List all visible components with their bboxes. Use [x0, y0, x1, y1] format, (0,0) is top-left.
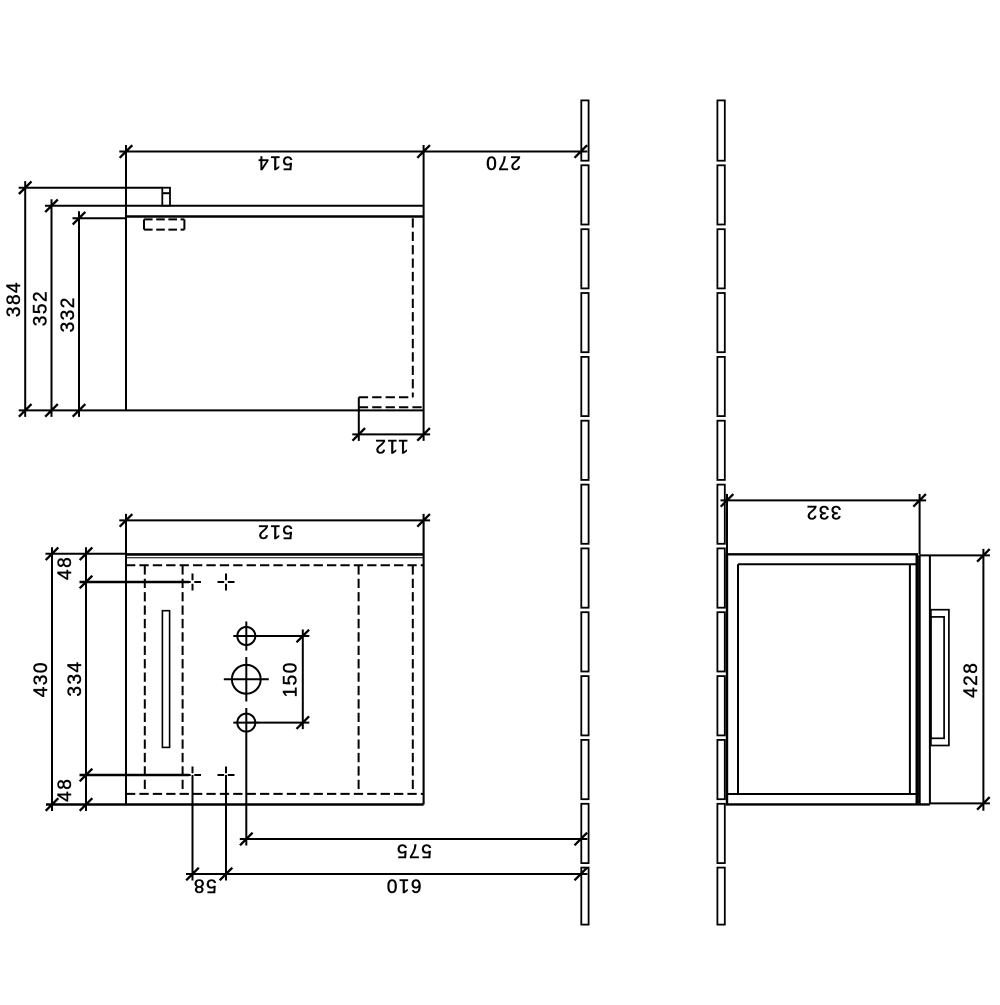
- svg-text:332: 332: [805, 501, 841, 522]
- svg-text:270: 270: [485, 152, 521, 173]
- svg-text:332: 332: [58, 296, 79, 332]
- svg-text:48: 48: [55, 778, 76, 802]
- svg-text:384: 384: [4, 281, 25, 317]
- svg-text:512: 512: [257, 521, 293, 542]
- svg-text:514: 514: [257, 152, 293, 173]
- svg-text:334: 334: [65, 660, 86, 696]
- svg-text:428: 428: [961, 662, 982, 698]
- svg-text:58: 58: [192, 875, 216, 896]
- svg-text:352: 352: [31, 290, 52, 326]
- svg-text:150: 150: [281, 661, 302, 697]
- svg-text:575: 575: [395, 840, 431, 861]
- svg-text:48: 48: [55, 556, 76, 580]
- svg-text:430: 430: [31, 661, 52, 697]
- svg-text:112: 112: [374, 435, 409, 456]
- svg-text:610: 610: [385, 875, 421, 896]
